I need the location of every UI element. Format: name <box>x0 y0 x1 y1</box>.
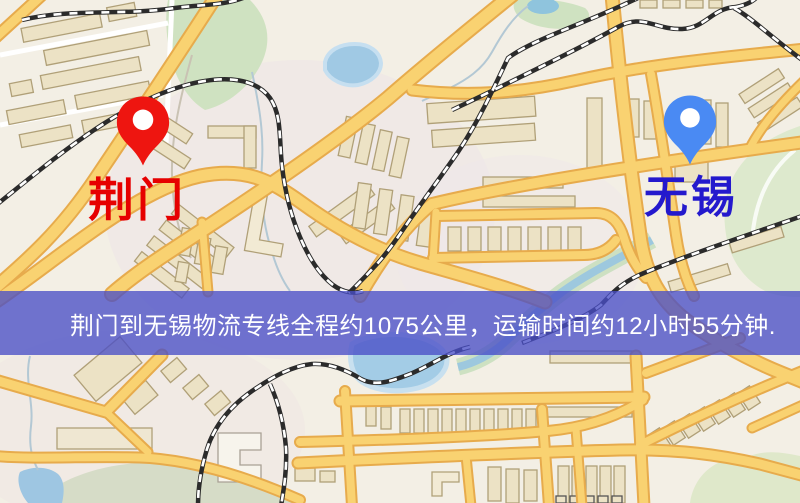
origin-pin-icon <box>115 94 171 168</box>
route-info-banner: 荆门到无锡物流专线全程约1075公里，运输时间约12小时55分钟. <box>0 291 800 355</box>
map-image <box>0 0 800 503</box>
origin-city-label: 荆门 <box>88 177 186 223</box>
map-view: 荆门 无锡 荆门到无锡物流专线全程约1075公里，运输时间约12小时55分钟. <box>0 0 800 503</box>
route-info-text: 荆门到无锡物流专线全程约1075公里，运输时间约12小时55分钟. <box>70 306 776 341</box>
destination-city-label: 无锡 <box>644 176 738 220</box>
destination-pin-icon <box>662 93 718 167</box>
